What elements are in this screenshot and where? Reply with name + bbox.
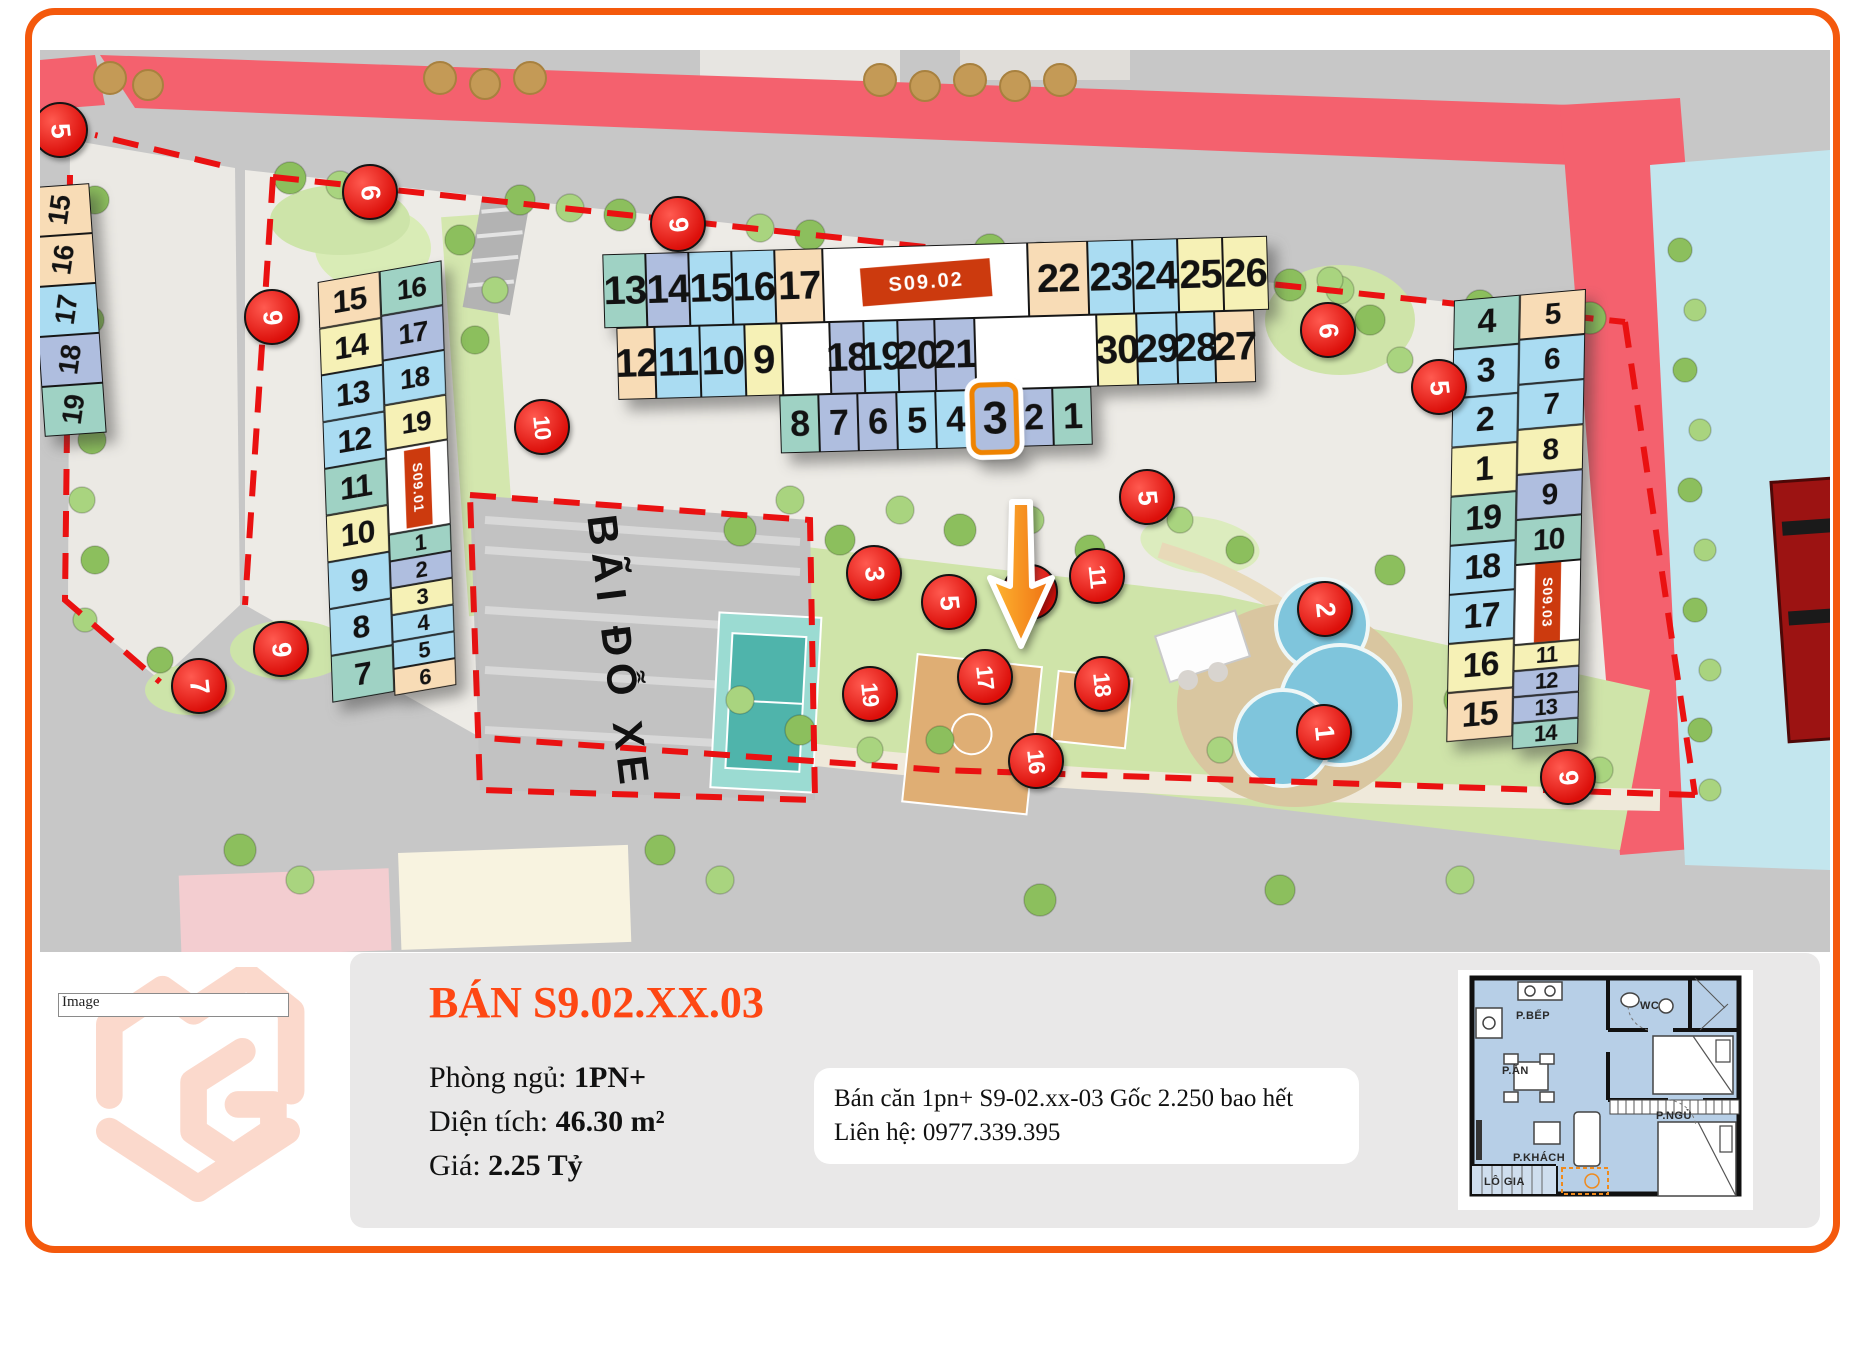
map-marker-18: 18 bbox=[1074, 656, 1130, 712]
unit-cell-b0903-8[interactable]: 8 bbox=[1517, 424, 1584, 475]
map-marker-2: 2 bbox=[1297, 581, 1353, 637]
empty-cell-b0902 bbox=[974, 315, 1098, 390]
field-area-value: 46.30 m² bbox=[556, 1105, 665, 1138]
unit-cell-b0902-13[interactable]: 13 bbox=[602, 253, 647, 328]
field-area: Diện tích: 46.30 m² bbox=[429, 1105, 665, 1139]
unit-cell-b0903-4[interactable]: 4 bbox=[1453, 295, 1520, 350]
map-marker-10: 10 bbox=[514, 399, 570, 455]
unit-cell-edge-17[interactable]: 17 bbox=[40, 283, 100, 337]
unit-cell-b0902-23[interactable]: 23 bbox=[1087, 240, 1134, 315]
map-marker-3: 3 bbox=[846, 545, 902, 601]
map-marker-16: 16 bbox=[1008, 733, 1064, 789]
unit-cell-b0902-7[interactable]: 7 bbox=[818, 393, 859, 452]
building-s09-01: 15141312111098716171819S09.01123456 bbox=[318, 260, 457, 706]
unit-cell-b0903-16[interactable]: 16 bbox=[1447, 638, 1514, 693]
building-label-cell-b0903: S09.03 bbox=[1514, 559, 1581, 645]
unit-cell-b0902-10[interactable]: 10 bbox=[699, 324, 746, 397]
floorplan-room-label-wc: WC bbox=[1640, 1000, 1659, 1012]
map-marker-1: 1 bbox=[1296, 704, 1352, 760]
unit-cell-b0903-18[interactable]: 18 bbox=[1449, 540, 1516, 595]
unit-cell-b0903-7[interactable]: 7 bbox=[1518, 379, 1585, 430]
map-marker-9: 9 bbox=[1540, 749, 1596, 805]
unit-cell-b0902-30[interactable]: 30 bbox=[1096, 313, 1138, 386]
unit-cell-b0902-28[interactable]: 28 bbox=[1176, 311, 1216, 384]
map-marker-19: 19 bbox=[842, 666, 898, 722]
unit-cell-b0902-17[interactable]: 17 bbox=[774, 248, 824, 323]
unit-cell-b0902-11[interactable]: 11 bbox=[654, 326, 701, 399]
building-label-cell-b0901: S09.01 bbox=[386, 439, 451, 534]
unit-cell-b0902-6[interactable]: 6 bbox=[857, 392, 898, 451]
unit-cell-edge-18[interactable]: 18 bbox=[40, 333, 103, 387]
listing-note: Bán căn 1pn+ S9-02.xx-03 Gốc 2.250 bao h… bbox=[814, 1068, 1359, 1164]
map-marker-6: 6 bbox=[342, 164, 398, 220]
unit-cell-b0902-24[interactable]: 24 bbox=[1132, 238, 1179, 313]
unit-cell-edge-15[interactable]: 15 bbox=[40, 183, 93, 237]
site-map-frame: 1516171819 15141312111098716171819S09.01… bbox=[25, 8, 1840, 1253]
unit-cell-b0903-9[interactable]: 9 bbox=[1516, 469, 1583, 520]
unit-cell-b0902-29[interactable]: 29 bbox=[1136, 312, 1178, 385]
selected-unit-arrow-icon bbox=[986, 498, 1056, 658]
unit-cell-b0903-10[interactable]: 10 bbox=[1515, 514, 1582, 565]
unit-cell-b0902-12[interactable]: 12 bbox=[616, 327, 656, 400]
unit-cell-b0901-7[interactable]: 7 bbox=[331, 645, 395, 703]
building-s09-03: 432119181716155678910S09.0311121314 bbox=[1446, 289, 1587, 755]
unit-cell-b0902-20[interactable]: 20 bbox=[897, 319, 936, 392]
unit-cell-b0902-27[interactable]: 27 bbox=[1214, 310, 1256, 383]
field-price-label: Giá: bbox=[429, 1149, 488, 1182]
field-price-value: 2.25 Tỷ bbox=[488, 1149, 582, 1182]
field-bedrooms-label: Phòng ngủ: bbox=[429, 1061, 574, 1094]
floorplan-image: P.BẾPWCP.ĂNP.NGỦP.KHÁCHLÔ GIA bbox=[1458, 970, 1753, 1210]
unit-cell-b0902-16[interactable]: 16 bbox=[731, 250, 776, 325]
unit-cell-b0902-14[interactable]: 14 bbox=[645, 252, 690, 327]
floorplan-room-label-p.bếp: P.BẾP bbox=[1516, 1010, 1550, 1022]
unit-cell-b0902-15[interactable]: 15 bbox=[688, 251, 733, 326]
floorplan-room-label-p.ăn: P.ĂN bbox=[1502, 1065, 1529, 1077]
site-plan-map: 1516171819 15141312111098716171819S09.01… bbox=[40, 50, 1830, 952]
map-marker-9: 9 bbox=[650, 196, 706, 252]
broken-image-placeholder: Image bbox=[58, 993, 289, 1017]
unit-cell-b0902-22[interactable]: 22 bbox=[1027, 241, 1089, 317]
unit-cell-edge-16[interactable]: 16 bbox=[40, 233, 96, 287]
unit-cell-b0903-15[interactable]: 15 bbox=[1446, 687, 1513, 742]
floorplan-room-label-p.khách: P.KHÁCH bbox=[1513, 1152, 1565, 1164]
map-marker-9: 9 bbox=[244, 289, 300, 345]
map-marker-6: 6 bbox=[1300, 302, 1356, 358]
unit-cell-b0902-25[interactable]: 25 bbox=[1177, 237, 1224, 312]
unit-cell-b0903-6[interactable]: 6 bbox=[1518, 334, 1585, 385]
unit-cell-b0902-5[interactable]: 5 bbox=[896, 391, 937, 450]
map-marker-7: 7 bbox=[171, 658, 227, 714]
floorplan-room-label-p.ngủ: P.NGỦ bbox=[1656, 1110, 1692, 1122]
floorplan-room-label-lô gia: LÔ GIA bbox=[1484, 1176, 1525, 1188]
field-bedrooms: Phòng ngủ: 1PN+ bbox=[429, 1061, 646, 1095]
building-label-cell-b0902: S09.02 bbox=[822, 242, 1029, 322]
unit-cell-b0902-8[interactable]: 8 bbox=[779, 394, 820, 453]
field-area-label: Diện tích: bbox=[429, 1105, 556, 1138]
unit-cell-b0902-9[interactable]: 9 bbox=[744, 323, 783, 396]
listing-title: BÁN S9.02.XX.03 bbox=[429, 977, 764, 1028]
map-marker-5: 5 bbox=[1411, 359, 1467, 415]
unit-cell-b0902-1[interactable]: 1 bbox=[1052, 387, 1093, 446]
map-marker-5: 5 bbox=[1119, 469, 1175, 525]
unit-cell-edge-19[interactable]: 19 bbox=[41, 383, 106, 437]
unit-cell-b0902-21[interactable]: 21 bbox=[934, 318, 976, 391]
unit-cell-b0902-3-selected[interactable]: 3 bbox=[969, 382, 1020, 456]
unit-cell-b0902-26[interactable]: 26 bbox=[1222, 236, 1269, 311]
empty-cell-b0902 bbox=[781, 322, 831, 395]
field-bedrooms-value: 1PN+ bbox=[574, 1061, 646, 1094]
field-price: Giá: 2.25 Tỷ bbox=[429, 1149, 583, 1183]
map-marker-11: 11 bbox=[1069, 548, 1125, 604]
unit-cell-b0903-17[interactable]: 17 bbox=[1448, 589, 1515, 644]
building-s09-02: 1314151617S09.02222324252612111091819202… bbox=[602, 236, 1272, 458]
map-marker-9: 9 bbox=[253, 621, 309, 677]
unit-cell-b0903-5[interactable]: 5 bbox=[1519, 289, 1586, 340]
unit-cell-b0903-19[interactable]: 19 bbox=[1450, 491, 1517, 546]
map-marker-5: 5 bbox=[921, 574, 977, 630]
unit-cell-b0903-1[interactable]: 1 bbox=[1451, 442, 1518, 497]
unit-cell-b0902-19[interactable]: 19 bbox=[863, 320, 899, 393]
